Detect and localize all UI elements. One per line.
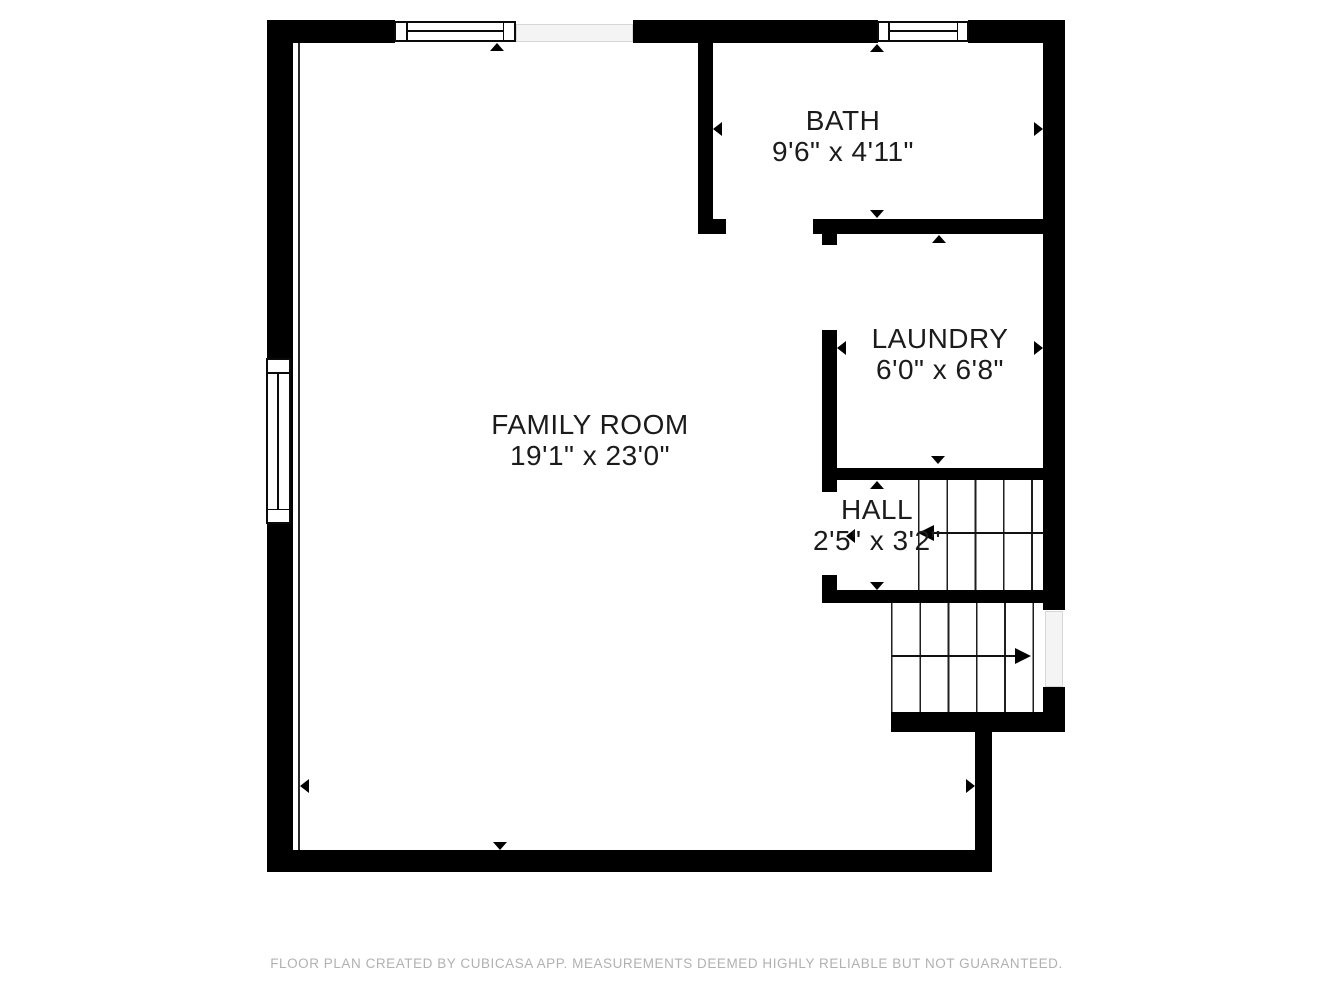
room-label-bath: BATH 9'6" x 4'11": [772, 105, 914, 167]
room-name: BATH: [772, 105, 914, 136]
measure-arrow-right-icon: [966, 779, 975, 793]
measure-arrow-up-icon: [870, 44, 884, 52]
left-wall-inner-face-line: [298, 43, 300, 850]
window-left-family: [266, 358, 291, 524]
measure-arrow-down-icon: [931, 456, 945, 464]
wall-bath-left: [698, 40, 713, 220]
wall-laundry-left: [822, 330, 837, 480]
room-dims: 9'6" x 4'11": [772, 136, 914, 167]
wall-hall-left-stub-top: [822, 480, 837, 492]
measure-arrow-left-icon: [300, 779, 309, 793]
stairs-upper-direction-line: [930, 532, 1044, 534]
measure-arrow-up-icon: [932, 235, 946, 243]
stairs-lower-direction-line: [892, 655, 1018, 657]
footer-disclaimer: FLOOR PLAN CREATED BY CUBICASA APP. MEAS…: [0, 956, 1333, 971]
opening-top-wall: [516, 24, 633, 42]
room-name: LAUNDRY: [872, 323, 1009, 354]
wall-bath-left-stub: [698, 219, 726, 234]
wall-hall-bottom: [822, 590, 1063, 603]
wall-top-mid: [633, 20, 878, 43]
room-dims: 6'0" x 6'8": [872, 354, 1009, 385]
window-top-bath: [877, 21, 969, 42]
room-dims: 19'1" x 23'0": [491, 440, 688, 471]
room-name: HALL: [813, 494, 941, 525]
wall-laundry-left-stub: [822, 234, 837, 245]
room-name: FAMILY ROOM: [491, 409, 688, 440]
wall-hall-left-stub-bottom: [822, 575, 837, 591]
room-label-hall: HALL 2'5" x 3'2": [813, 494, 941, 556]
wall-bottom: [267, 850, 992, 872]
measure-arrow-left-icon: [837, 341, 846, 355]
wall-laundry-bottom: [822, 468, 1063, 480]
opening-right-exit: [1045, 611, 1063, 687]
measure-arrow-up-icon: [490, 43, 504, 51]
wall-right-lower: [975, 712, 992, 852]
measure-arrow-left-icon: [713, 122, 722, 136]
room-dims: 2'5" x 3'2": [813, 525, 941, 556]
measure-arrow-down-icon: [870, 582, 884, 590]
room-label-family: FAMILY ROOM 19'1" x 23'0": [491, 409, 688, 471]
measure-arrow-up-icon: [870, 481, 884, 489]
room-label-laundry: LAUNDRY 6'0" x 6'8": [872, 323, 1009, 385]
window-top-family: [394, 21, 516, 42]
wall-bath-bottom: [813, 219, 1045, 234]
measure-arrow-down-icon: [870, 210, 884, 218]
floor-plan: FAMILY ROOM 19'1" x 23'0" BATH 9'6" x 4'…: [0, 0, 1333, 1000]
stairs-lower-direction-arrow-icon: [1015, 648, 1031, 664]
wall-right-outer: [1043, 20, 1065, 610]
measure-arrow-down-icon: [493, 842, 507, 850]
measure-arrow-right-icon: [1034, 341, 1043, 355]
measure-arrow-right-icon: [1034, 122, 1043, 136]
